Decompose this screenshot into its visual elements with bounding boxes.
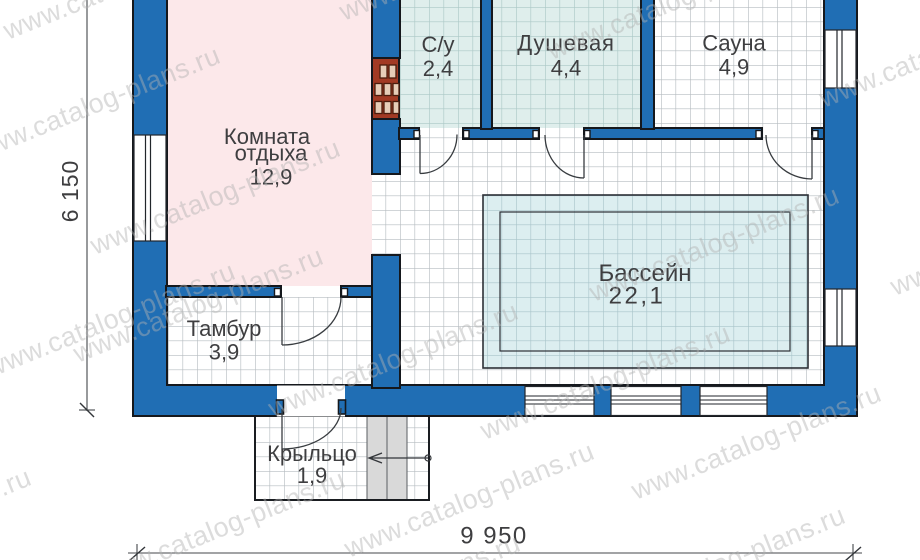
svg-text:www.catalog-plans.ru: www.catalog-plans.ru bbox=[0, 462, 35, 560]
svg-text:www.catalog-plans.ru: www.catalog-plans.ru bbox=[590, 500, 849, 560]
svg-text:6 150: 6 150 bbox=[57, 160, 83, 223]
svg-text:4,9: 4,9 bbox=[719, 55, 750, 80]
svg-text:Сауна: Сауна bbox=[702, 31, 766, 56]
svg-text:С/у: С/у bbox=[422, 32, 455, 57]
svg-text:2,4: 2,4 bbox=[423, 56, 454, 81]
svg-text:www.catalog-plans.ru: www.catalog-plans.ru bbox=[885, 174, 920, 302]
svg-text:3,9: 3,9 bbox=[209, 340, 240, 365]
svg-text:www.catalog-plans.ru: www.catalog-plans.ru bbox=[90, 464, 349, 560]
